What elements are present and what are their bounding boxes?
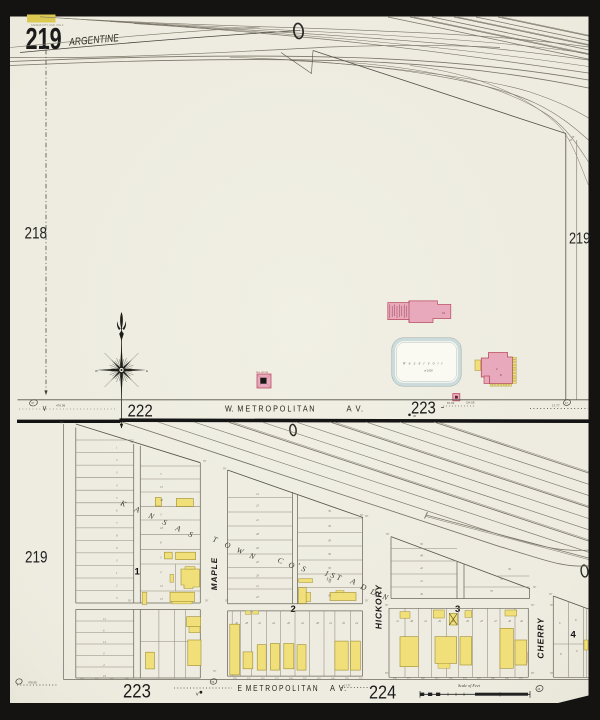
svg-text:E M E T R O P O L I T A N: E M E T R O P O L I T A N bbox=[238, 683, 318, 693]
svg-text:48: 48 bbox=[245, 621, 249, 625]
svg-text:218: 218 bbox=[25, 224, 48, 243]
svg-text:18: 18 bbox=[160, 526, 164, 530]
svg-text:4: 4 bbox=[571, 630, 577, 641]
svg-text:47: 47 bbox=[494, 619, 498, 623]
svg-text:Scale of Feet: Scale of Feet bbox=[458, 683, 481, 688]
svg-text:W. M E T R O P O L I T A N: W. M E T R O P O L I T A N bbox=[225, 404, 314, 413]
svg-text:50′: 50′ bbox=[386, 533, 390, 536]
svg-text:67.01: 67.01 bbox=[447, 401, 455, 405]
svg-text:50′: 50′ bbox=[365, 515, 369, 518]
svg-text:50′: 50′ bbox=[365, 600, 369, 603]
svg-text:49: 49 bbox=[420, 592, 424, 596]
svg-text:20: 20 bbox=[256, 560, 260, 564]
svg-text:50′: 50′ bbox=[131, 441, 135, 444]
svg-text:50′: 50′ bbox=[533, 586, 537, 589]
svg-text:35: 35 bbox=[490, 589, 494, 593]
svg-text:48: 48 bbox=[410, 619, 414, 623]
svg-text:39: 39 bbox=[328, 552, 332, 556]
svg-text:50′: 50′ bbox=[203, 460, 207, 463]
svg-text:476.99: 476.99 bbox=[28, 680, 37, 684]
svg-text:W: W bbox=[95, 369, 98, 373]
svg-text:50′: 50′ bbox=[225, 600, 229, 603]
svg-text:223: 223 bbox=[123, 681, 151, 702]
svg-text:42: 42 bbox=[258, 621, 262, 625]
svg-text:23: 23 bbox=[256, 504, 260, 508]
svg-text:1: 1 bbox=[135, 567, 141, 578]
svg-text:39: 39 bbox=[328, 509, 332, 513]
svg-text:49: 49 bbox=[466, 619, 470, 623]
svg-text:50′: 50′ bbox=[549, 593, 553, 596]
svg-text:19: 19 bbox=[103, 674, 107, 678]
svg-text:50′: 50′ bbox=[360, 514, 364, 517]
svg-text:42: 42 bbox=[301, 621, 305, 625]
svg-text:39: 39 bbox=[508, 567, 512, 571]
svg-text:12: 12 bbox=[103, 617, 107, 621]
svg-text:29: 29 bbox=[256, 574, 260, 578]
svg-text:30: 30 bbox=[328, 524, 332, 528]
svg-text:50′: 50′ bbox=[60, 422, 64, 425]
svg-text:48: 48 bbox=[420, 554, 424, 558]
svg-text:33: 33 bbox=[328, 594, 332, 598]
svg-text:CH.05: CH.05 bbox=[466, 400, 475, 404]
svg-text:of 1000: of 1000 bbox=[424, 369, 433, 373]
svg-text:B: B bbox=[45, 47, 47, 51]
svg-text:21: 21 bbox=[256, 492, 260, 496]
svg-text:21: 21 bbox=[256, 518, 260, 522]
svg-text:44: 44 bbox=[272, 621, 276, 625]
svg-text:50′: 50′ bbox=[572, 136, 576, 139]
svg-text:49: 49 bbox=[342, 621, 346, 625]
svg-text:219: 219 bbox=[25, 548, 48, 567]
svg-text:50′: 50′ bbox=[385, 672, 389, 675]
svg-text:17.77: 17.77 bbox=[344, 684, 351, 688]
svg-text:CHERRY: CHERRY bbox=[536, 617, 546, 660]
svg-text:41: 41 bbox=[396, 619, 400, 623]
svg-text:41: 41 bbox=[329, 621, 333, 625]
svg-text:46: 46 bbox=[287, 621, 291, 625]
svg-text:20: 20 bbox=[160, 498, 164, 502]
svg-text:50′: 50′ bbox=[213, 670, 217, 673]
svg-text:48: 48 bbox=[316, 621, 320, 625]
svg-text:50′: 50′ bbox=[531, 672, 535, 675]
svg-text:MAPLE: MAPLE bbox=[210, 556, 219, 590]
svg-text:50′: 50′ bbox=[205, 600, 209, 603]
svg-text:49: 49 bbox=[438, 619, 442, 623]
svg-text:50′: 50′ bbox=[385, 604, 389, 607]
svg-text:33: 33 bbox=[500, 577, 504, 581]
svg-text:23: 23 bbox=[256, 595, 260, 599]
svg-text:41: 41 bbox=[424, 619, 428, 623]
svg-text:15: 15 bbox=[160, 584, 164, 588]
svg-text:41: 41 bbox=[420, 579, 424, 583]
svg-text:50′: 50′ bbox=[550, 672, 554, 675]
svg-text:50′: 50′ bbox=[550, 604, 554, 607]
svg-text:46: 46 bbox=[520, 619, 524, 623]
svg-text:14: 14 bbox=[103, 640, 107, 644]
svg-text:30: 30 bbox=[328, 580, 332, 584]
svg-text:222: 222 bbox=[128, 402, 153, 421]
svg-text:40: 40 bbox=[235, 621, 239, 625]
svg-text:224: 224 bbox=[369, 682, 396, 703]
svg-text:36: 36 bbox=[413, 414, 417, 418]
svg-text:50′: 50′ bbox=[128, 600, 132, 603]
svg-text:50: 50 bbox=[420, 542, 424, 546]
svg-text:476.99: 476.99 bbox=[56, 404, 66, 408]
svg-text:17.77: 17.77 bbox=[552, 404, 560, 408]
svg-text:42: 42 bbox=[420, 566, 424, 570]
svg-text:36: 36 bbox=[328, 566, 332, 570]
svg-text:15: 15 bbox=[160, 597, 164, 601]
svg-text:50′: 50′ bbox=[223, 468, 227, 471]
svg-text:50′: 50′ bbox=[531, 604, 535, 607]
svg-text:219: 219 bbox=[569, 230, 590, 247]
svg-text:43: 43 bbox=[480, 619, 484, 623]
svg-text:W.H. DITION: W.H. DITION bbox=[256, 372, 269, 374]
svg-text:E: E bbox=[146, 369, 148, 373]
svg-text:13: 13 bbox=[160, 485, 164, 489]
svg-text:44: 44 bbox=[355, 621, 359, 625]
svg-text:40: 40 bbox=[452, 619, 456, 623]
svg-text:48: 48 bbox=[508, 619, 512, 623]
svg-text:21: 21 bbox=[256, 584, 260, 588]
svg-text:R e s e r v o i r: R e s e r v o i r bbox=[403, 362, 444, 366]
svg-text:39: 39 bbox=[328, 539, 332, 543]
svg-text:A V.: A V. bbox=[347, 404, 365, 413]
svg-text:26: 26 bbox=[256, 546, 260, 550]
svg-text:28: 28 bbox=[256, 532, 260, 536]
